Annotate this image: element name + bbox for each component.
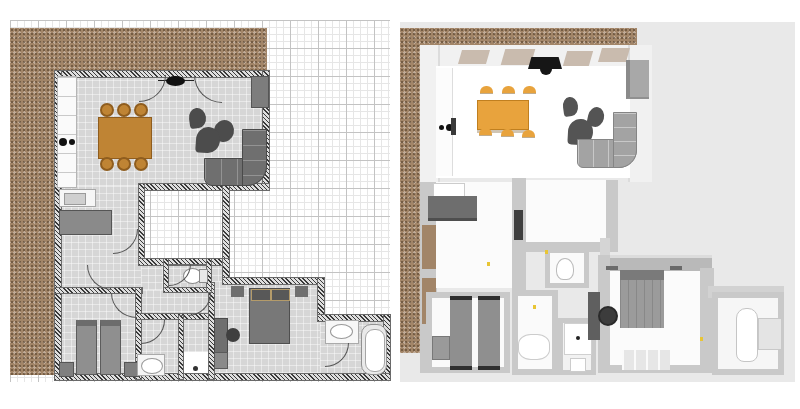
dining-table-3d xyxy=(477,100,529,130)
terrace-left-2d xyxy=(10,28,56,375)
single-bed xyxy=(76,320,97,375)
panel-3d-view[interactable] xyxy=(400,0,800,409)
dining-chair-3d xyxy=(479,128,492,143)
desk-chair-3d xyxy=(598,306,618,326)
corner-sofa-vertical xyxy=(242,129,267,186)
light-switch-3d xyxy=(533,305,536,309)
dining-chair-3d xyxy=(523,86,536,101)
window-3d-bathroom xyxy=(758,318,782,350)
wall xyxy=(179,316,183,379)
wall xyxy=(223,278,324,284)
dining-chair-3d xyxy=(502,86,515,101)
dining-chair-3d xyxy=(522,130,535,145)
cabinet-3d xyxy=(432,336,450,360)
room-shower-3d xyxy=(512,290,558,375)
bed-pillow xyxy=(271,289,290,301)
panel-2d-plan[interactable] xyxy=(0,0,400,409)
wall-courtyard-right-3d xyxy=(606,180,618,243)
small-fixture-3d xyxy=(570,358,586,372)
wall xyxy=(136,314,214,319)
window-3d xyxy=(563,51,593,66)
stove-burner xyxy=(69,139,75,145)
light-switch-3d xyxy=(545,250,548,254)
nightstand-3d xyxy=(606,266,618,270)
nightstand-3d xyxy=(670,266,682,270)
desk-drawer xyxy=(214,352,228,369)
kitchen-counter xyxy=(57,76,77,188)
doorway-dark-3d xyxy=(514,210,523,240)
dining-chair-3d xyxy=(480,86,493,101)
nightstand xyxy=(295,286,308,297)
single-bed-3d xyxy=(450,296,472,370)
desk-chair xyxy=(226,328,240,342)
window-terrace-view xyxy=(421,224,437,270)
dining-chair xyxy=(100,103,114,117)
stove-burner-3d xyxy=(439,125,444,130)
double-bed-3d xyxy=(620,270,664,328)
corner-sofa-3d-vertical xyxy=(613,112,637,168)
dining-table xyxy=(98,117,152,159)
tv-3d xyxy=(528,57,562,69)
floor-closet-upper xyxy=(181,316,211,352)
wardrobe-3d xyxy=(626,60,649,99)
single-bed xyxy=(100,320,121,375)
wardrobe-2d xyxy=(251,76,269,108)
bath-sink xyxy=(330,324,353,339)
bathtub-3d xyxy=(736,308,758,362)
wc-tank xyxy=(199,269,208,283)
floor-plan-canvas xyxy=(0,0,800,409)
nightstand xyxy=(59,362,74,377)
closet-fixture xyxy=(193,366,198,371)
dining-chair xyxy=(100,157,114,171)
light-switch-3d xyxy=(700,337,703,341)
kitchen-sink-basin xyxy=(64,193,86,205)
dining-chair xyxy=(117,157,131,171)
floor-courtyard-3d xyxy=(526,180,606,242)
washbasin xyxy=(141,358,163,374)
wall xyxy=(164,288,211,292)
single-bed-3d xyxy=(478,296,500,370)
wall xyxy=(139,184,144,265)
nightstand xyxy=(231,286,244,297)
oven-3d xyxy=(451,118,456,135)
light-switch-3d xyxy=(487,262,490,266)
wall xyxy=(223,184,229,265)
dining-chair xyxy=(134,103,148,117)
floor-closet xyxy=(181,352,211,376)
bed-pillow xyxy=(251,289,271,301)
dining-chair-3d xyxy=(501,129,514,144)
window-3d xyxy=(458,50,490,64)
sideboard xyxy=(59,210,112,235)
stove-burner xyxy=(59,138,67,146)
shower-drain-3d xyxy=(576,336,580,340)
rug-3d xyxy=(622,350,670,370)
bathtub-basin xyxy=(365,329,385,372)
sideboard-3d xyxy=(428,196,477,221)
washbasin-3d xyxy=(518,334,550,360)
terrace-left-3d xyxy=(400,28,420,353)
dining-chair xyxy=(117,103,131,117)
dining-chair xyxy=(134,157,148,171)
wc-3d xyxy=(556,258,574,280)
ceiling-lamp xyxy=(166,76,185,86)
